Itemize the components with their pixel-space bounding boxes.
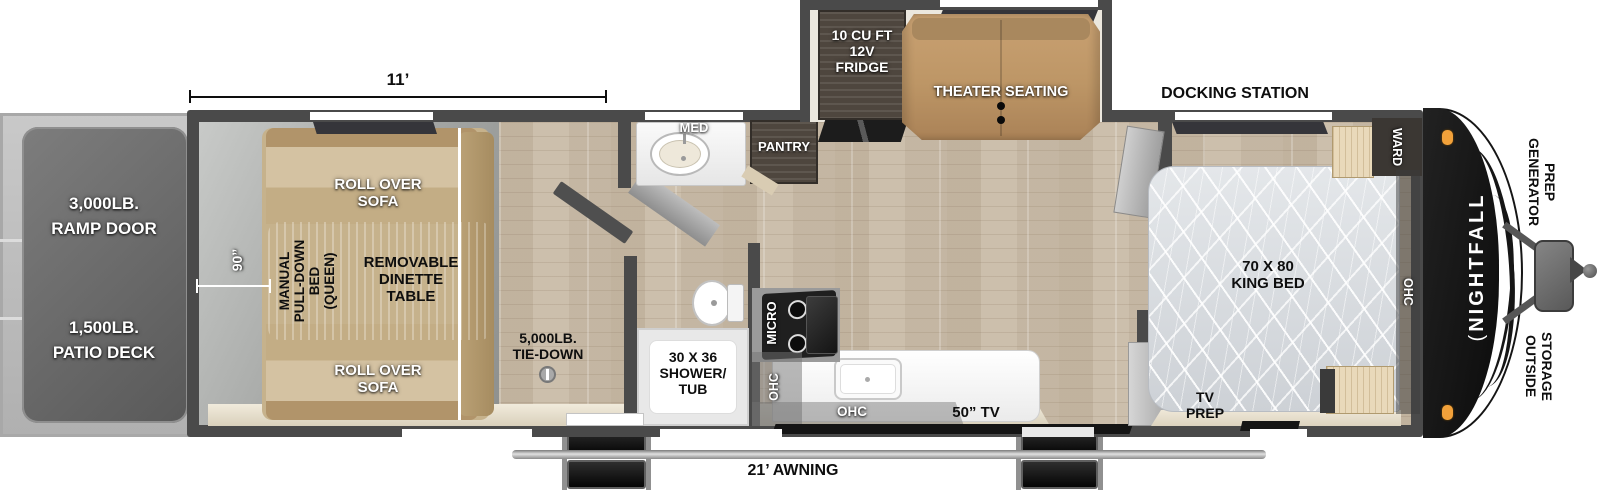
- roll-over-sofa-bottom-label: ROLL OVER SOFA: [300, 362, 456, 396]
- toilet-tank: [727, 284, 744, 322]
- garage-length-label: 11’: [190, 70, 606, 89]
- dimension-tick: [196, 279, 198, 293]
- entry-door-threshold: [566, 413, 644, 426]
- wardrobe-label: WARD: [1390, 128, 1404, 166]
- med-cabinet-label: MED: [658, 121, 730, 136]
- king-bed-label: 70 X 80 KING BED: [1196, 258, 1340, 292]
- tie-down-anchor-slot: [546, 369, 549, 380]
- brand-logo: (NIGHTFALL: [1443, 161, 1473, 373]
- cupholder-icon: [997, 116, 1005, 124]
- nightstand-tv-icon: [1320, 369, 1335, 413]
- patio-deck-label: 1,500LB. PATIO DECK: [28, 316, 180, 365]
- window: [1175, 112, 1332, 120]
- tv-50-label: 50” TV: [928, 404, 1024, 421]
- fridge-label: 10 CU FT 12V FRIDGE: [818, 28, 906, 76]
- window: [402, 429, 532, 437]
- tie-down-label: 5,000LB. TIE-DOWN: [495, 331, 601, 363]
- dimension-line: [197, 285, 271, 287]
- ohc-cabinet: [313, 122, 437, 134]
- ohc-overlay: OHC: [1396, 170, 1420, 414]
- clearance-light-icon: [1442, 130, 1453, 145]
- brand-logo-text: NIGHTFALL: [1466, 193, 1488, 332]
- bathroom-wall: [624, 256, 637, 426]
- tv-prep-label: TV PREP: [1163, 390, 1247, 422]
- awning-bar: [512, 450, 1266, 459]
- propane-box: [1534, 240, 1574, 312]
- cupholder-icon: [997, 102, 1005, 110]
- fridge-counter: [818, 120, 908, 142]
- window: [310, 112, 433, 120]
- ramp-door: [22, 127, 188, 423]
- hitch-ball-icon: [1583, 264, 1597, 278]
- dimension-line: [190, 96, 606, 98]
- rv-floorplan: 3,000LB. RAMP DOOR 1,500LB. PATIO DECK 1…: [0, 0, 1600, 492]
- nightstand: [1326, 366, 1394, 414]
- burner-icon: [788, 334, 807, 354]
- ramp-door-label: 3,000LB. RAMP DOOR: [28, 192, 180, 241]
- awning-label: 21’ AWNING: [698, 462, 888, 480]
- docking-station-label: DOCKING STATION: [1150, 85, 1320, 103]
- theater-seating-label: THEATER SEATING: [910, 84, 1092, 101]
- pull-down-bed-label: MANUAL PULL-DOWN BED (QUEEN): [278, 225, 340, 337]
- generator-prep-label: GENERATOR PREP: [1518, 124, 1564, 240]
- window: [660, 429, 782, 437]
- burner-icon: [788, 300, 807, 320]
- entry-step: [1021, 460, 1098, 489]
- deck-rail-seam: [0, 317, 24, 320]
- toilet-flush-dot: [711, 300, 717, 306]
- ohc-wall-label: OHC: [767, 357, 789, 417]
- dimension-tick: [605, 90, 607, 103]
- ohc-counter-label: OHC: [822, 404, 882, 419]
- nightstand: [1332, 126, 1374, 178]
- brand-crescent-icon: (: [1466, 332, 1488, 342]
- clearance-light-icon: [1442, 405, 1453, 420]
- bathroom-wall: [618, 122, 631, 188]
- window: [1250, 429, 1307, 437]
- micro-label: MICRO: [765, 291, 787, 355]
- window: [940, 0, 1098, 7]
- dinette-table-label: REMOVABLE DINETTE TABLE: [352, 254, 470, 305]
- outside-storage-label: OUTSIDE STORAGE: [1516, 316, 1560, 416]
- oven-panel: [806, 296, 838, 354]
- sink-bowl: [659, 140, 701, 168]
- drain-icon: [681, 156, 686, 161]
- window: [645, 112, 743, 120]
- ohc-cabinet: [1172, 122, 1328, 134]
- wardrobe: WARD: [1372, 118, 1422, 176]
- entry-step: [567, 460, 646, 489]
- bedroom-ohc-label: OHC: [1401, 278, 1415, 306]
- pantry-label: PANTRY: [748, 140, 820, 155]
- entry-door-threshold: [1022, 427, 1094, 437]
- drain-icon: [865, 377, 870, 382]
- shower-tub-label: 30 X 36 SHOWER/ TUB: [640, 350, 746, 398]
- dimension-tick: [269, 279, 271, 293]
- roll-over-sofa-top-label: ROLL OVER SOFA: [300, 176, 456, 210]
- garage-width-label: 90”: [230, 238, 250, 282]
- dimension-tick: [189, 90, 191, 103]
- deck-rail-seam: [0, 239, 24, 242]
